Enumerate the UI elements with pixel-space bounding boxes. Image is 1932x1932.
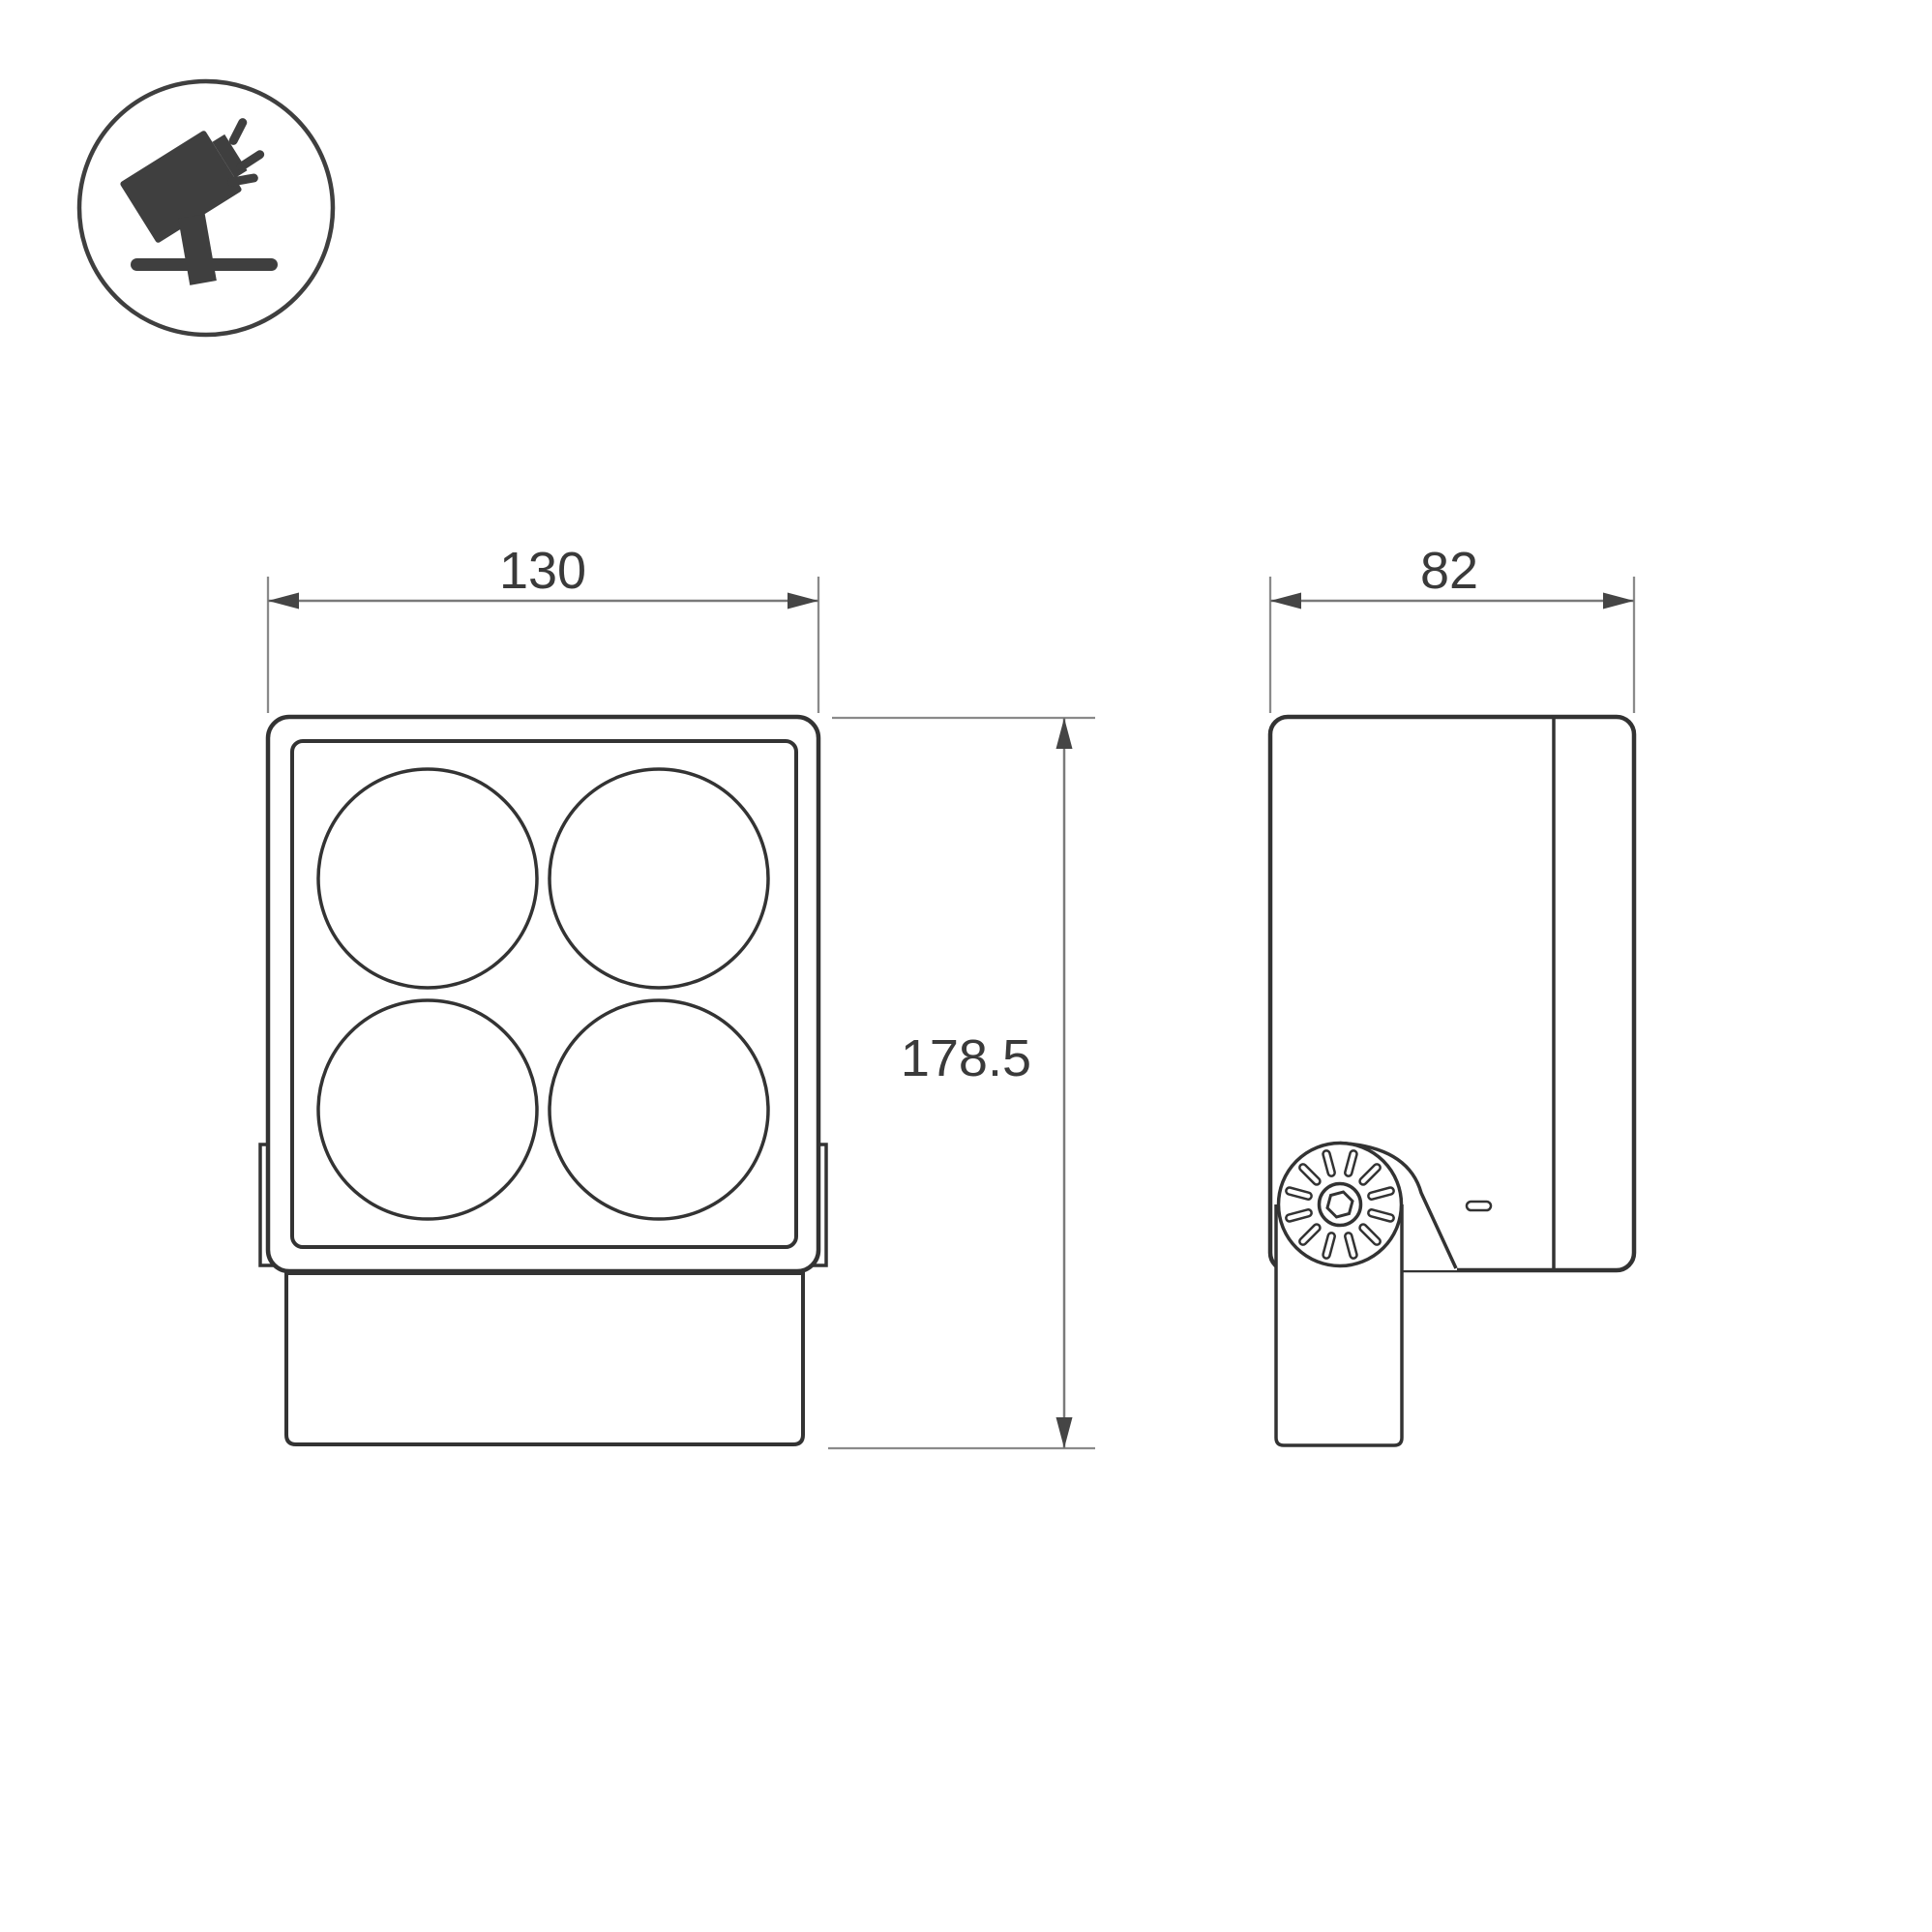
front-view: 130: [260, 542, 826, 1444]
front-width-dimension: 130: [268, 542, 818, 713]
side-depth-dimension: 82: [1270, 542, 1634, 713]
adjustment-knob: [1279, 1144, 1402, 1266]
arrowhead-down: [1056, 1417, 1073, 1448]
arrowhead-right: [788, 593, 818, 609]
floodlight-icon: [79, 81, 333, 335]
front-bracket-plate: [286, 1273, 803, 1444]
drawing-canvas: 130 178.5: [0, 0, 1932, 1932]
height-value: 178.5: [901, 1029, 1031, 1087]
height-dimension: 178.5: [828, 718, 1095, 1448]
arrowhead-left: [268, 593, 299, 609]
arrowhead-right: [1603, 593, 1634, 609]
dimension-drawing-svg: 130 178.5: [0, 0, 1932, 1932]
side-view: 82: [1270, 542, 1634, 1445]
hex-socket-screw-icon: [1327, 1192, 1352, 1217]
front-width-value: 130: [499, 542, 586, 600]
depth-value: 82: [1420, 542, 1478, 600]
arrowhead-left: [1270, 593, 1301, 609]
ground-bar-icon: [131, 258, 278, 271]
stand-post-icon: [178, 214, 217, 285]
arrowhead-up: [1056, 718, 1073, 749]
